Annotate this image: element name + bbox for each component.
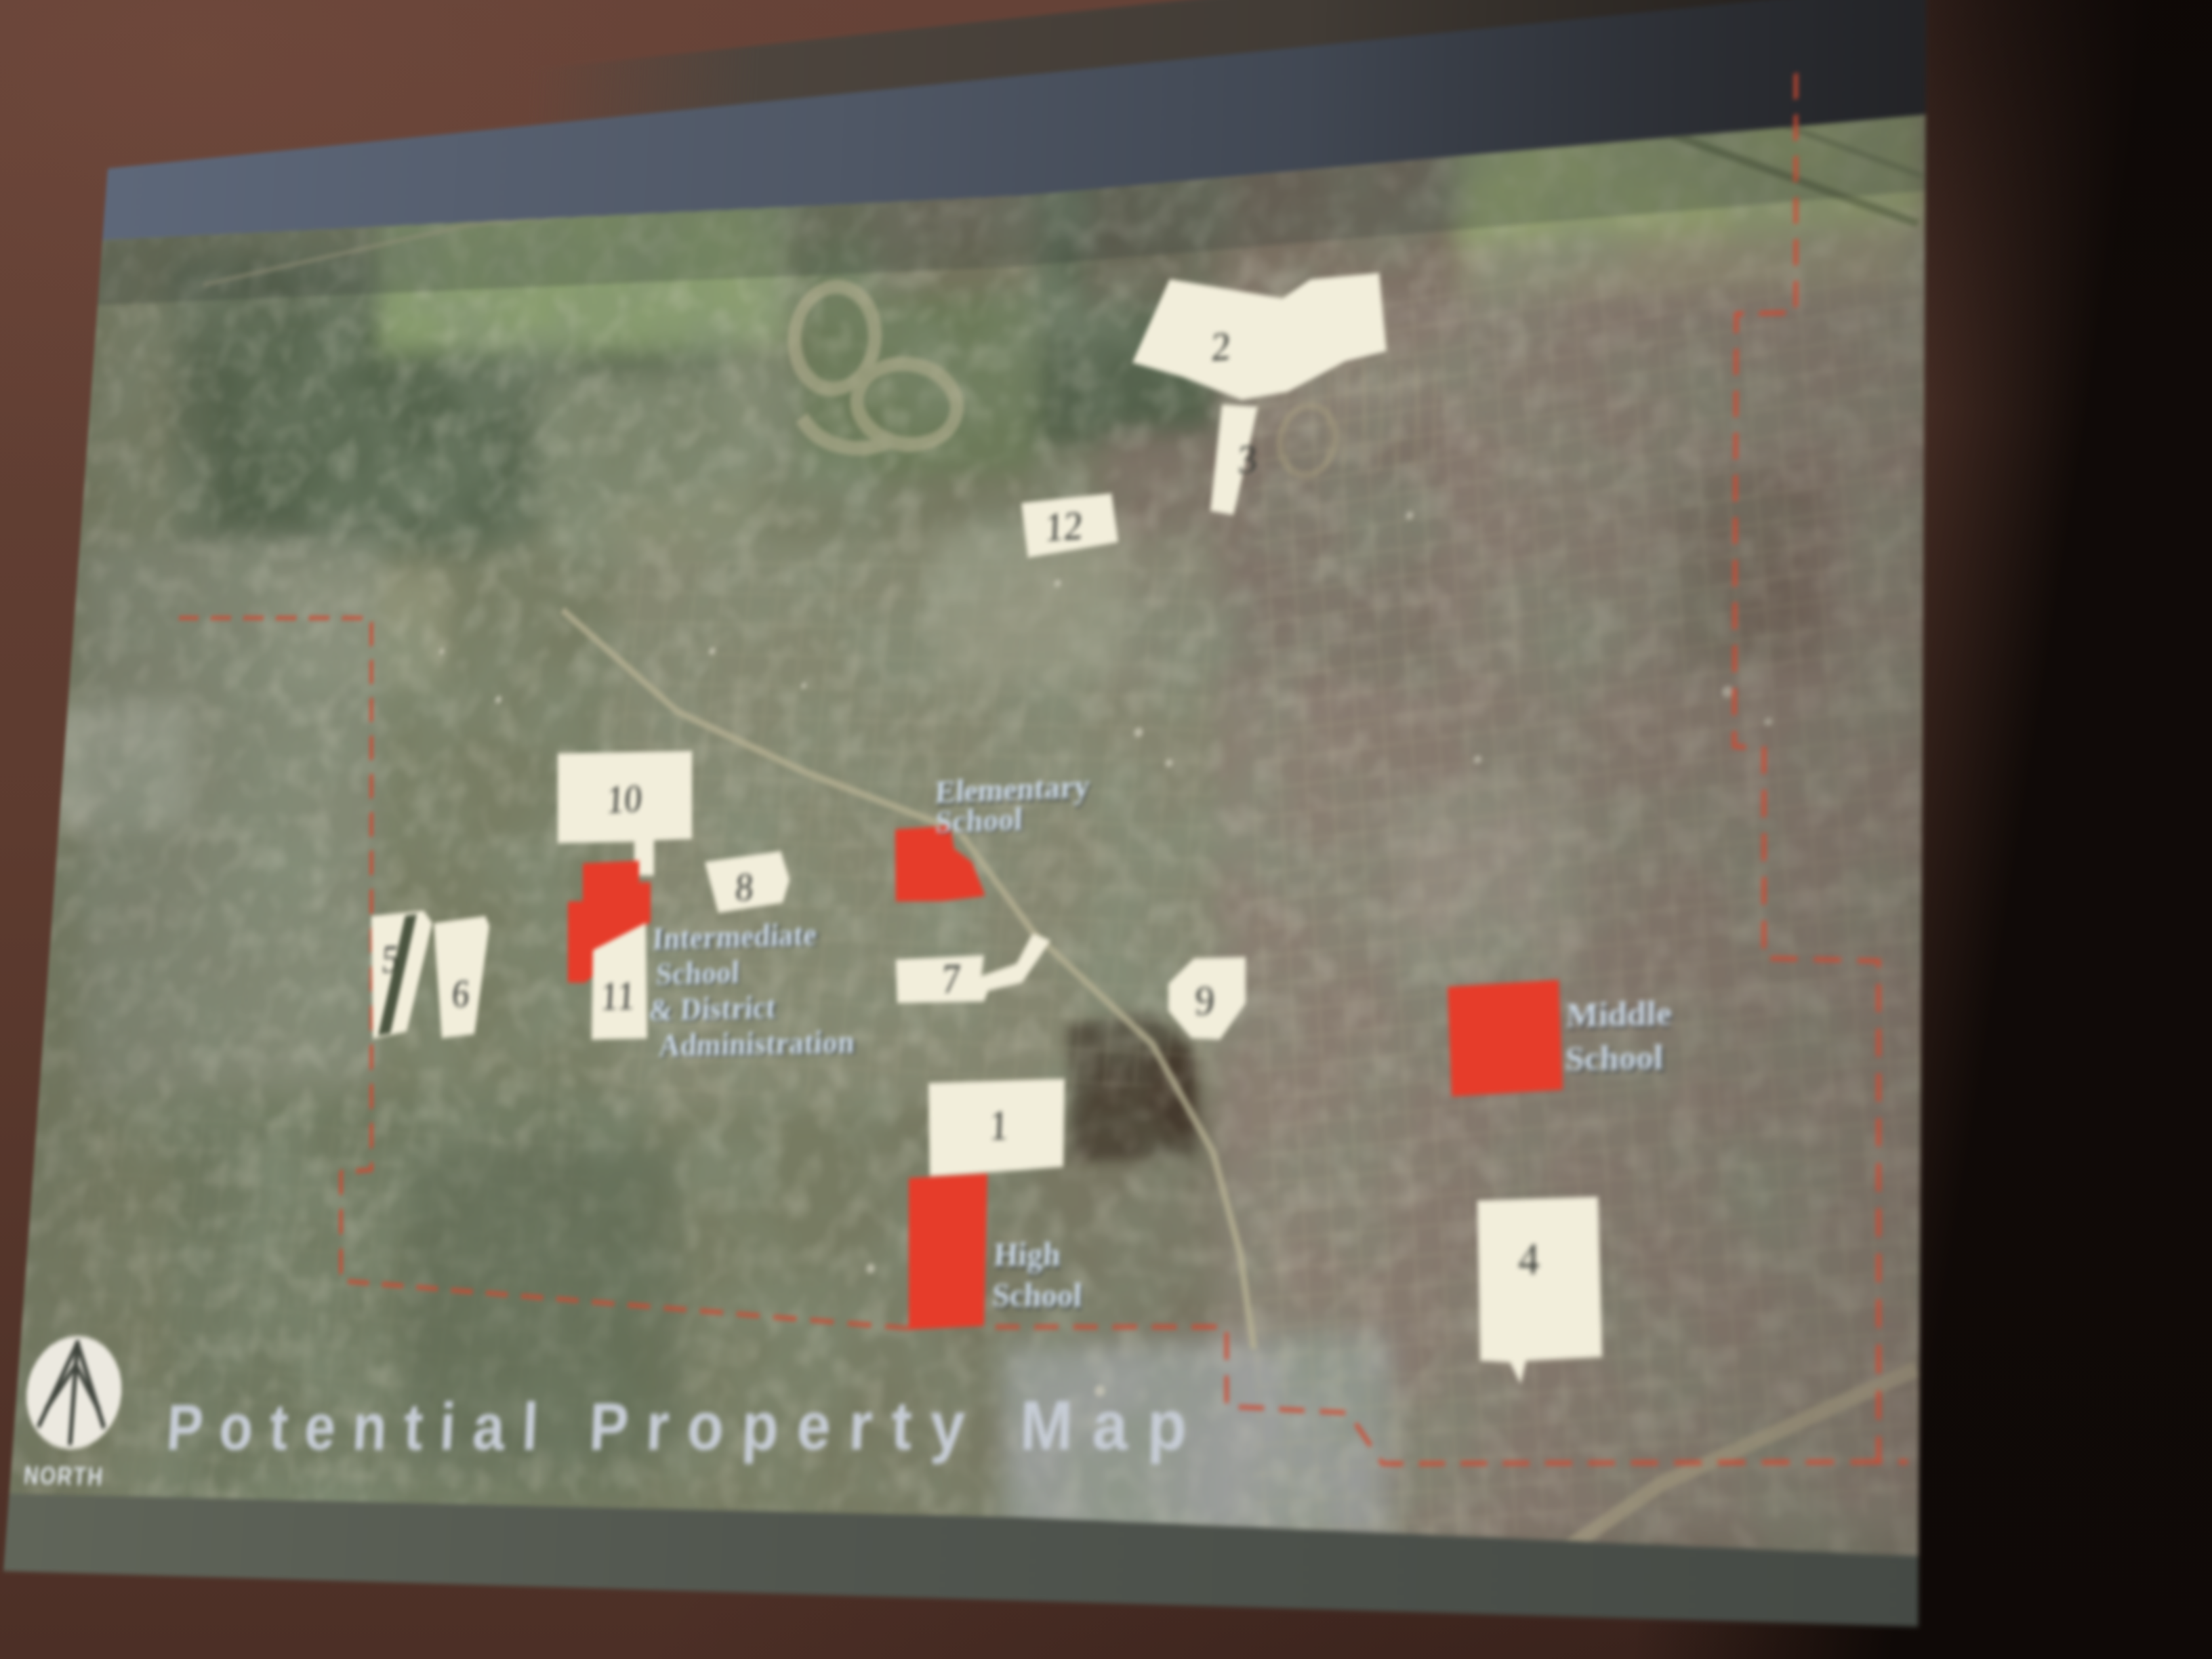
svg-text:4: 4 (1518, 1235, 1540, 1284)
svg-text:Potential Property Map: Potential Property Map (165, 1386, 1207, 1465)
svg-text:Intermediate: Intermediate (652, 915, 818, 956)
svg-text:9: 9 (1194, 977, 1215, 1025)
svg-text:6: 6 (451, 972, 470, 1016)
svg-text:7: 7 (941, 956, 962, 1002)
svg-text:School: School (1565, 1037, 1663, 1078)
svg-text:& District: & District (648, 988, 777, 1027)
svg-text:12: 12 (1044, 503, 1084, 550)
svg-text:High: High (993, 1235, 1061, 1273)
svg-text:School: School (655, 954, 741, 992)
svg-text:School: School (935, 800, 1023, 840)
svg-text:3: 3 (1237, 436, 1258, 483)
svg-text:11: 11 (600, 973, 636, 1019)
svg-text:2: 2 (1211, 323, 1232, 369)
svg-text:School: School (991, 1275, 1082, 1314)
svg-text:NORTH: NORTH (23, 1461, 105, 1491)
svg-text:Administration: Administration (658, 1023, 855, 1063)
svg-text:10: 10 (606, 777, 644, 822)
svg-text:Middle: Middle (1565, 993, 1671, 1035)
svg-text:1: 1 (988, 1102, 1009, 1149)
svg-text:8: 8 (734, 865, 754, 910)
